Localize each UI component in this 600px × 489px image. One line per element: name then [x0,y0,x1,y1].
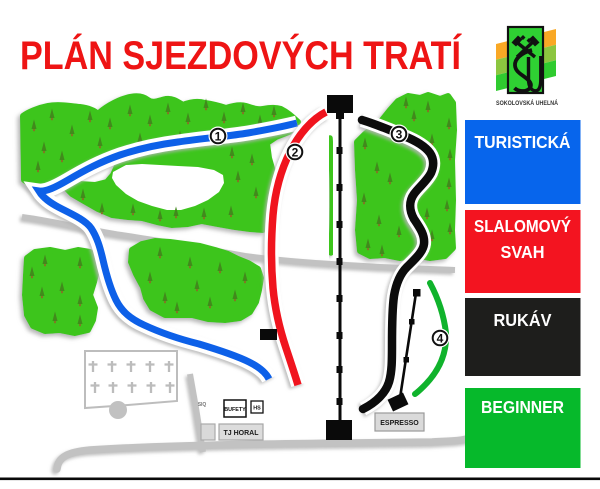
svg-text:ESPRESSO: ESPRESSO [380,420,419,427]
svg-text:BEGINNER: BEGINNER [481,397,565,417]
svg-text:PLÁN SJEZDOVÝCH TRATÍ: PLÁN SJEZDOVÝCH TRATÍ [20,34,462,78]
svg-text:TJ HORAL: TJ HORAL [224,430,260,437]
svg-text:BUFETY: BUFETY [224,407,246,413]
svg-text:SLALOMOVÝ: SLALOMOVÝ [474,216,571,236]
svg-text:RUKÁV: RUKÁV [494,310,552,330]
svg-text:SVAH: SVAH [501,242,545,262]
svg-text:2: 2 [292,145,299,159]
svg-text:1: 1 [215,129,222,143]
svg-text:SIQ: SIQ [198,402,207,408]
svg-text:4: 4 [437,331,444,345]
svg-text:HS: HS [253,406,261,412]
svg-text:3: 3 [396,127,403,141]
svg-text:SOKOLOVSKÁ UHELNÁ: SOKOLOVSKÁ UHELNÁ [496,98,558,107]
svg-text:TURISTICKÁ: TURISTICKÁ [475,132,571,152]
